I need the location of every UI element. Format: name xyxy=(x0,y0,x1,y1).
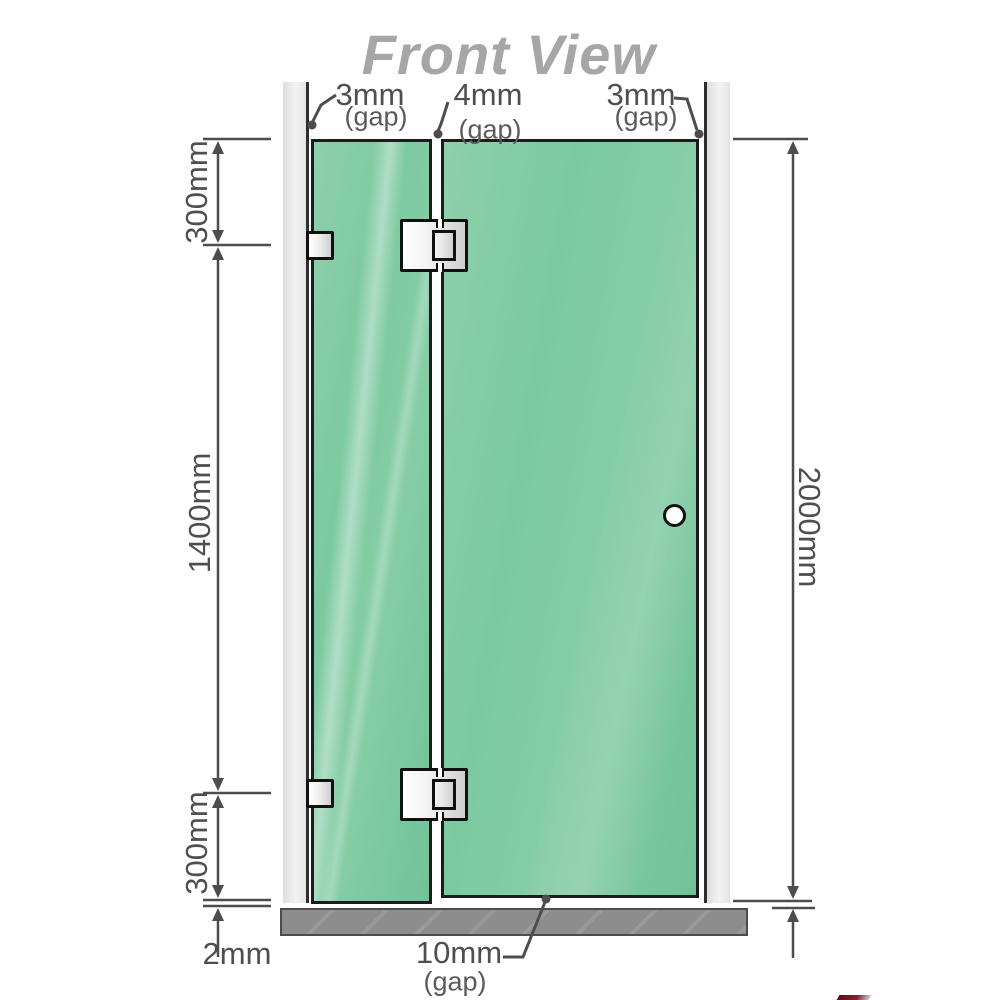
dim-label-left-1400: 1400mm xyxy=(182,453,218,574)
leader-lines xyxy=(313,95,697,957)
dimension-lines xyxy=(0,0,1000,1000)
leader-dots xyxy=(308,121,704,904)
dim-label-right-2000: 2000mm xyxy=(791,467,827,588)
logo-fragment xyxy=(837,995,872,1000)
gap-qualifier-right: (gap) xyxy=(614,102,677,133)
diagram-canvas: Front View xyxy=(0,0,1000,1000)
gap-label-4mm-middle: 4mm xyxy=(454,77,523,113)
gap-qualifier-middle: (gap) xyxy=(458,115,521,146)
dim-label-floor-gap-2mm: 2mm xyxy=(203,936,272,972)
dim-label-left-300-bottom: 300mm xyxy=(179,791,215,894)
dimension-shafts xyxy=(218,150,793,958)
dimension-ticks xyxy=(203,139,815,908)
gap-qualifier-left: (gap) xyxy=(344,102,407,133)
dim-label-left-300-top: 300mm xyxy=(179,140,215,243)
gap-qualifier-bottom: (gap) xyxy=(423,967,486,998)
dimension-arrowheads xyxy=(212,141,799,922)
